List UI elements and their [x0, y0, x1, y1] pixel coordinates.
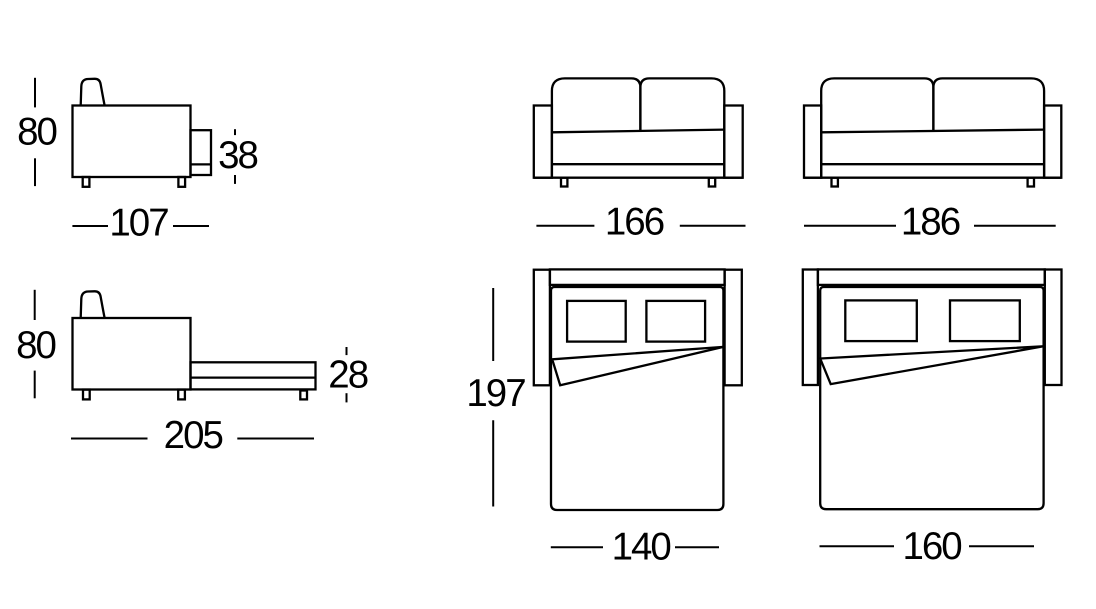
svg-text:28: 28: [328, 354, 367, 397]
svg-text:80: 80: [16, 324, 55, 367]
svg-text:197: 197: [466, 372, 525, 415]
svg-text:140: 140: [612, 526, 671, 569]
svg-text:160: 160: [902, 525, 961, 568]
svg-text:186: 186: [901, 200, 960, 243]
svg-text:80: 80: [17, 111, 56, 154]
svg-text:38: 38: [218, 134, 257, 177]
svg-text:205: 205: [164, 414, 223, 457]
svg-text:166: 166: [605, 201, 664, 244]
svg-text:107: 107: [109, 202, 168, 245]
